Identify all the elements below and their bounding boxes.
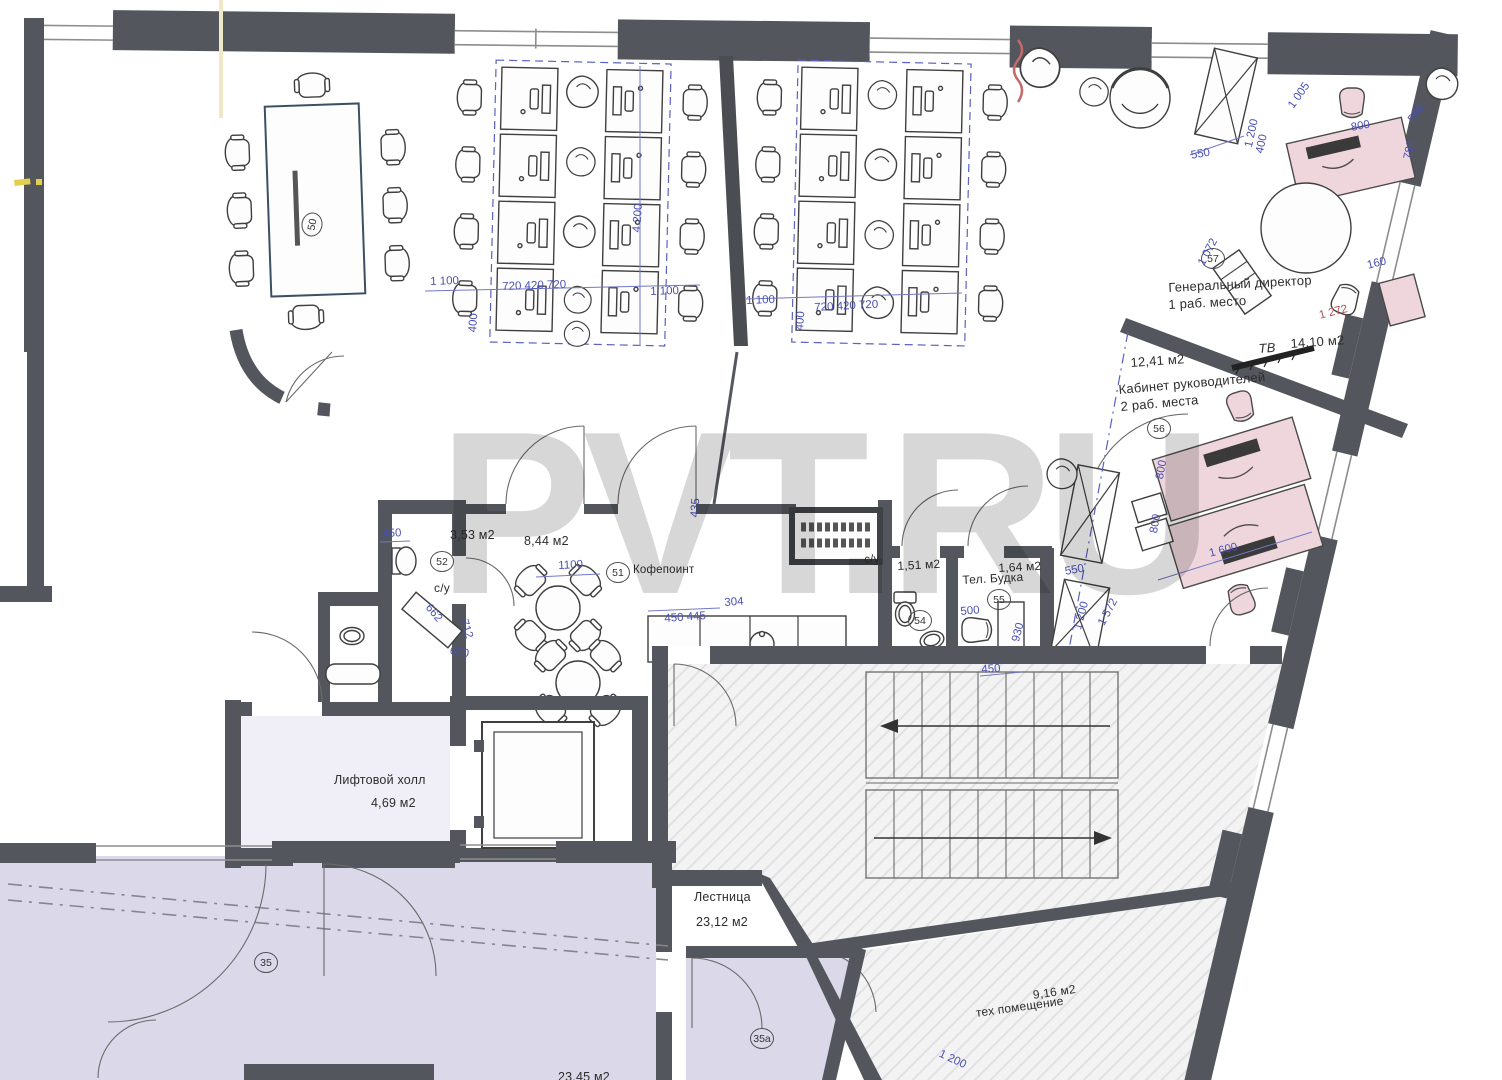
partition-wall-lower	[714, 352, 737, 504]
dim-label: 450	[382, 527, 402, 540]
dim-label: 500	[960, 604, 980, 618]
room-marker-wc-small: 52	[430, 551, 454, 572]
wc-mid-name-label: с/у	[864, 553, 880, 566]
dim-label: 720 420 720	[502, 279, 566, 293]
tv-label: ТВ	[1258, 340, 1276, 356]
bottom-partial-area-label: 23,45 м2	[558, 1070, 610, 1080]
wall-pier	[113, 10, 455, 54]
elevator-car	[474, 722, 594, 848]
coffee-area-label: 8,44 м2	[524, 534, 569, 548]
workstation-cluster-2	[752, 59, 1008, 347]
round-meeting-table	[1261, 183, 1351, 273]
wc-small-area-label: 3,53 м2	[450, 528, 495, 542]
scan-artifact	[219, 0, 223, 118]
stairs-area-label: 23,12 м2	[696, 915, 748, 929]
outer-wall-left	[0, 0, 223, 602]
room-marker-coffee: 51	[606, 562, 630, 583]
dim-label: 1 100	[650, 285, 679, 298]
room-marker-booth: 55	[987, 589, 1011, 610]
dim-label: 4 200	[631, 203, 645, 233]
dim-label: 1 100	[430, 275, 459, 288]
dim-label: 304	[724, 596, 744, 609]
dim-label: 400	[467, 313, 480, 333]
conference-room	[223, 70, 412, 332]
floor-plan-page: PVT.RU Генеральный директор 1 раб. место…	[0, 0, 1502, 1080]
partition-wall	[719, 56, 748, 346]
floor-plan-drawing	[0, 0, 1502, 1080]
wc-small-name-label: с/у	[434, 581, 450, 595]
basin	[340, 628, 364, 645]
wall-sink	[396, 547, 416, 575]
stairs-name-label: Лестница	[694, 890, 751, 904]
tub	[326, 664, 380, 684]
wc-mid-area-label: 1,51 м2	[897, 557, 941, 573]
room-marker-managers: 56	[1147, 418, 1171, 439]
hall-35-floor	[0, 856, 672, 1080]
dim-label: 450	[981, 663, 1001, 676]
yellow-mark	[36, 179, 42, 185]
room-marker-35a: 35а	[750, 1028, 774, 1049]
dim-label: 400	[794, 311, 807, 331]
dim-label: 435	[689, 498, 702, 518]
dim-label: 1 100	[746, 294, 775, 307]
conference-table	[265, 103, 366, 296]
lift-hall-name-label: Лифтовой холл	[334, 773, 426, 787]
lounge-chair	[1110, 68, 1170, 128]
coffee-name-label: Кофепоинт	[633, 564, 694, 576]
table-label-strip	[295, 171, 298, 246]
door-leaf	[286, 352, 332, 402]
room-marker-wc-mid: 54	[908, 610, 932, 631]
room-marker-35: 35	[254, 952, 278, 973]
dim-label: 1100	[558, 559, 583, 572]
workstation-cluster-1	[452, 59, 708, 349]
lift-hall-area-label: 4,69 м2	[371, 796, 416, 810]
